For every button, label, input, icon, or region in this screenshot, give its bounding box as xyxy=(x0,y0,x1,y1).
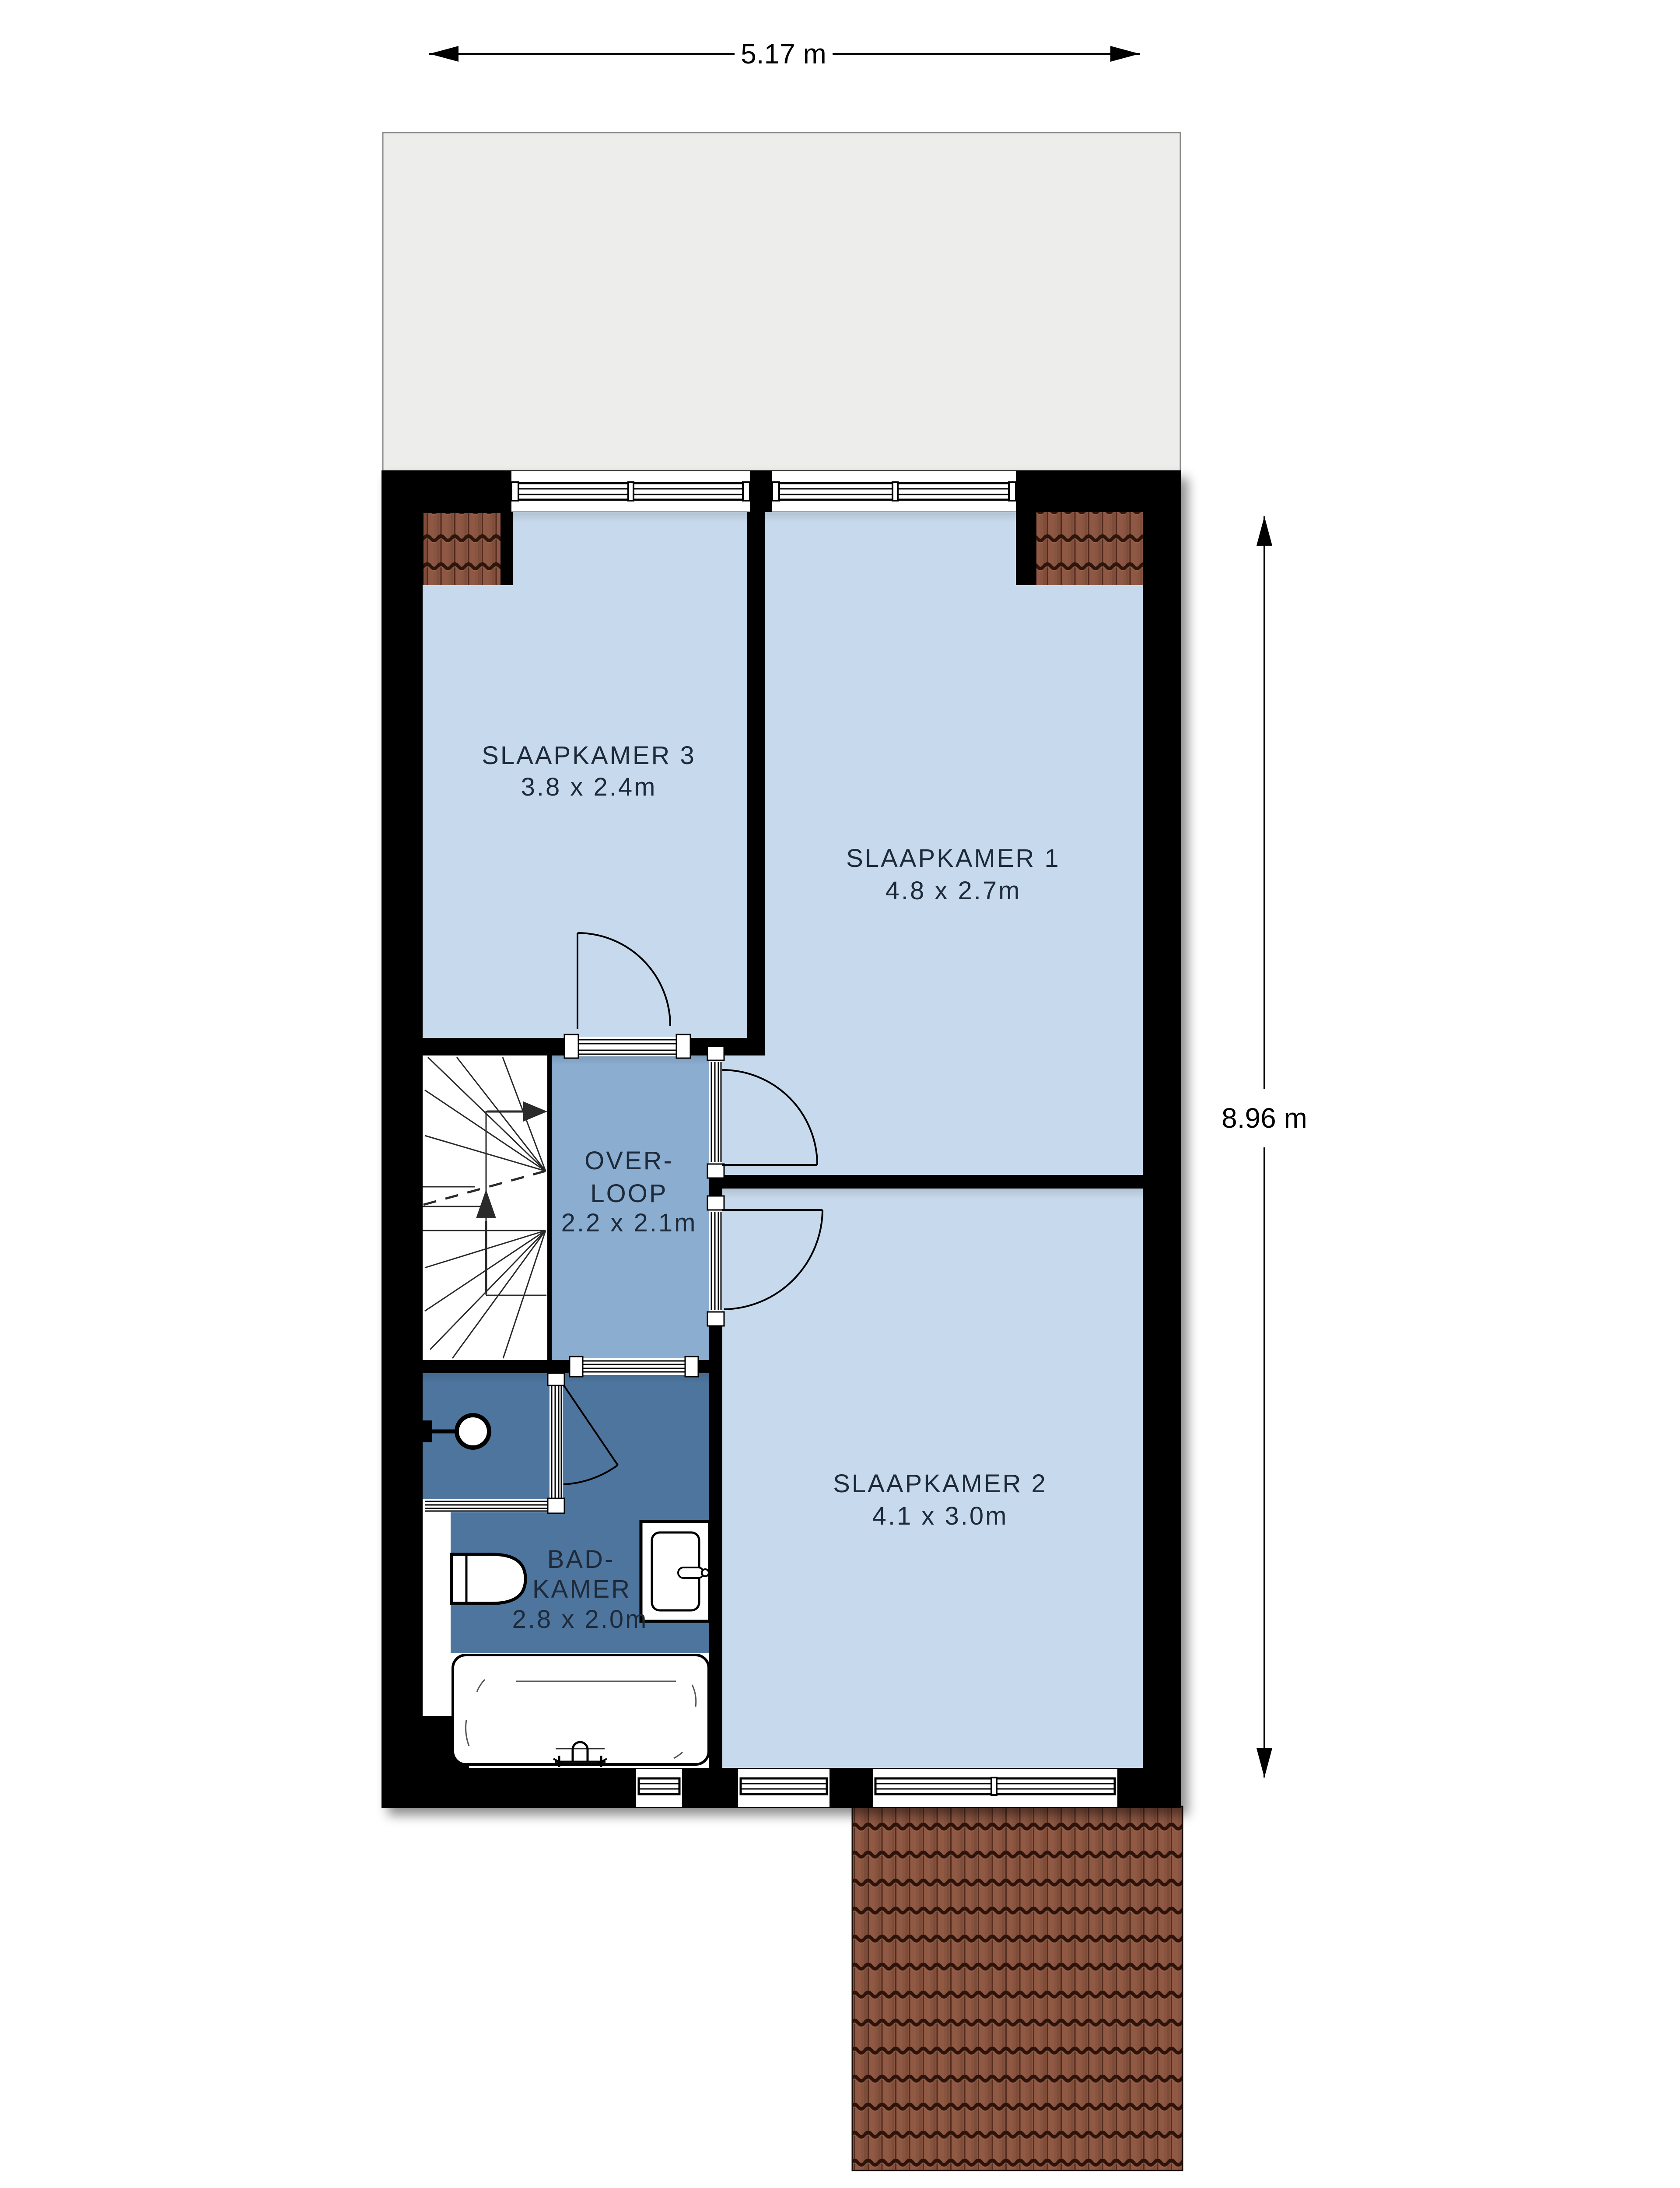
svg-text:5.17 m: 5.17 m xyxy=(741,38,826,70)
svg-text:KAMER: KAMER xyxy=(532,1575,631,1603)
svg-text:LOOP: LOOP xyxy=(590,1179,668,1208)
svg-text:OVER-: OVER- xyxy=(584,1147,674,1175)
svg-text:2.8 x 2.0m: 2.8 x 2.0m xyxy=(512,1605,648,1634)
svg-text:4.1 x 3.0m: 4.1 x 3.0m xyxy=(872,1502,1008,1530)
svg-text:SLAAPKAMER 1: SLAAPKAMER 1 xyxy=(846,844,1060,873)
svg-text:8.96 m: 8.96 m xyxy=(1221,1102,1307,1134)
svg-text:2.2 x 2.1m: 2.2 x 2.1m xyxy=(561,1209,697,1237)
svg-text:4.8 x 2.7m: 4.8 x 2.7m xyxy=(885,877,1022,905)
svg-text:BAD-: BAD- xyxy=(547,1545,615,1574)
svg-text:3.8 x 2.4m: 3.8 x 2.4m xyxy=(521,773,657,801)
svg-text:SLAAPKAMER 2: SLAAPKAMER 2 xyxy=(833,1469,1047,1498)
svg-text:SLAAPKAMER 3: SLAAPKAMER 3 xyxy=(482,741,696,770)
